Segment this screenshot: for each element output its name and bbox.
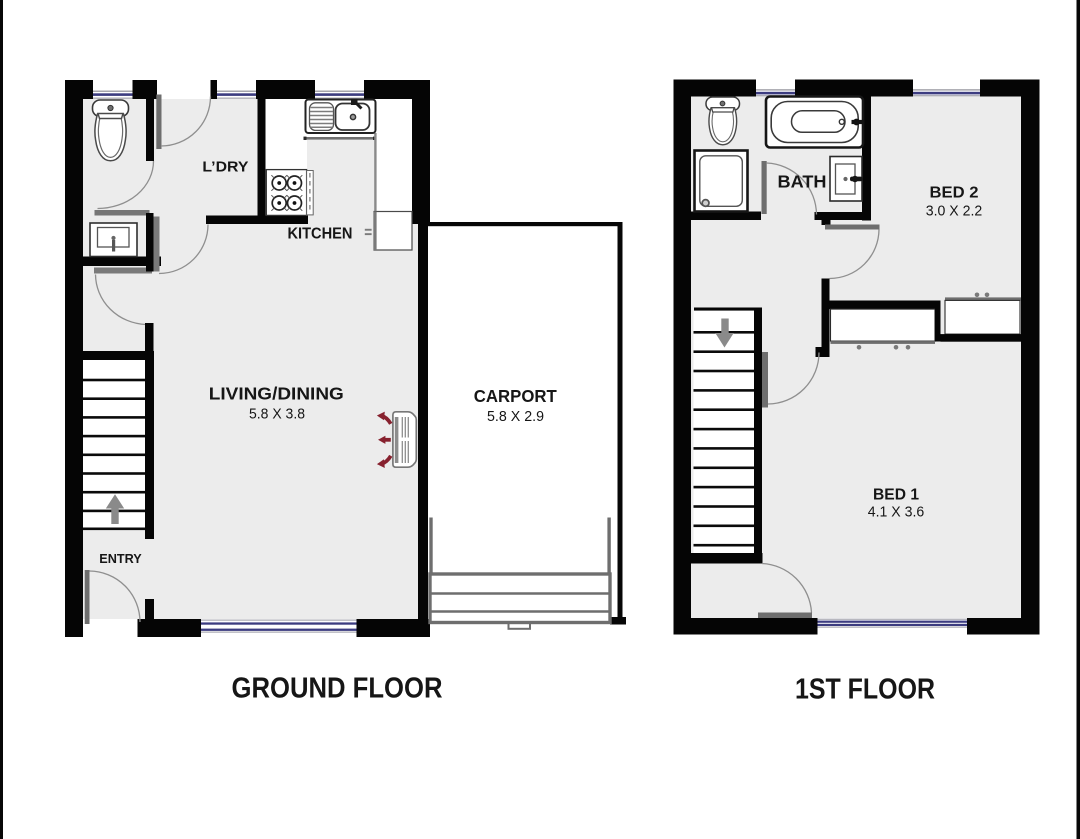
svg-text:BATH: BATH: [778, 171, 827, 191]
svg-text:3.0 X 2.2: 3.0 X 2.2: [926, 204, 983, 220]
svg-text:ENTRY: ENTRY: [99, 552, 142, 566]
svg-text:5.8 X 3.8: 5.8 X 3.8: [249, 406, 305, 422]
svg-text:BED 2: BED 2: [930, 184, 979, 201]
svg-text:L’DRY: L’DRY: [202, 159, 248, 176]
svg-text:1ST FLOOR: 1ST FLOOR: [795, 674, 935, 706]
svg-text:LIVING/DINING: LIVING/DINING: [209, 384, 344, 404]
svg-text:4.1 X 3.6: 4.1 X 3.6: [868, 505, 925, 521]
svg-text:GROUND FLOOR: GROUND FLOOR: [232, 673, 443, 705]
svg-text:KITCHEN: KITCHEN: [288, 226, 353, 243]
svg-text:5.8 X 2.9: 5.8 X 2.9: [487, 409, 544, 425]
svg-text:CARPORT: CARPORT: [474, 386, 557, 406]
svg-text:BED 1: BED 1: [873, 487, 919, 504]
